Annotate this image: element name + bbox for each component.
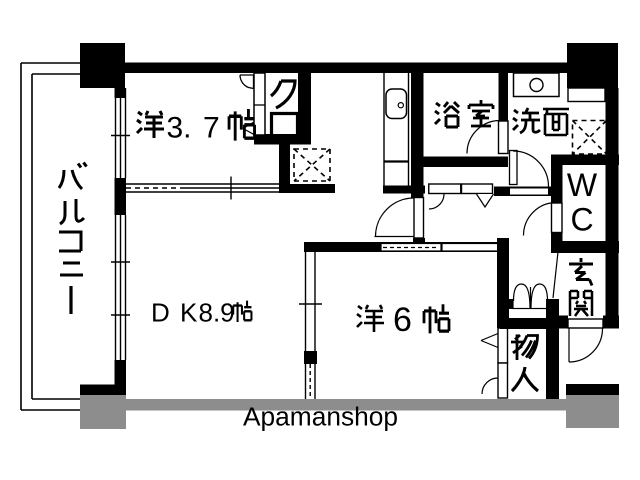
svg-text:W: W (567, 167, 598, 203)
svg-text:3.: 3. (167, 112, 192, 145)
svg-text:D: D (151, 298, 170, 328)
svg-text:8.9: 8.9 (199, 298, 235, 328)
svg-text:7: 7 (203, 112, 220, 145)
svg-text:6: 6 (393, 301, 412, 339)
svg-text:Apamanshop: Apamanshop (243, 402, 398, 432)
svg-text:K: K (180, 298, 198, 328)
svg-text:C: C (570, 202, 593, 238)
